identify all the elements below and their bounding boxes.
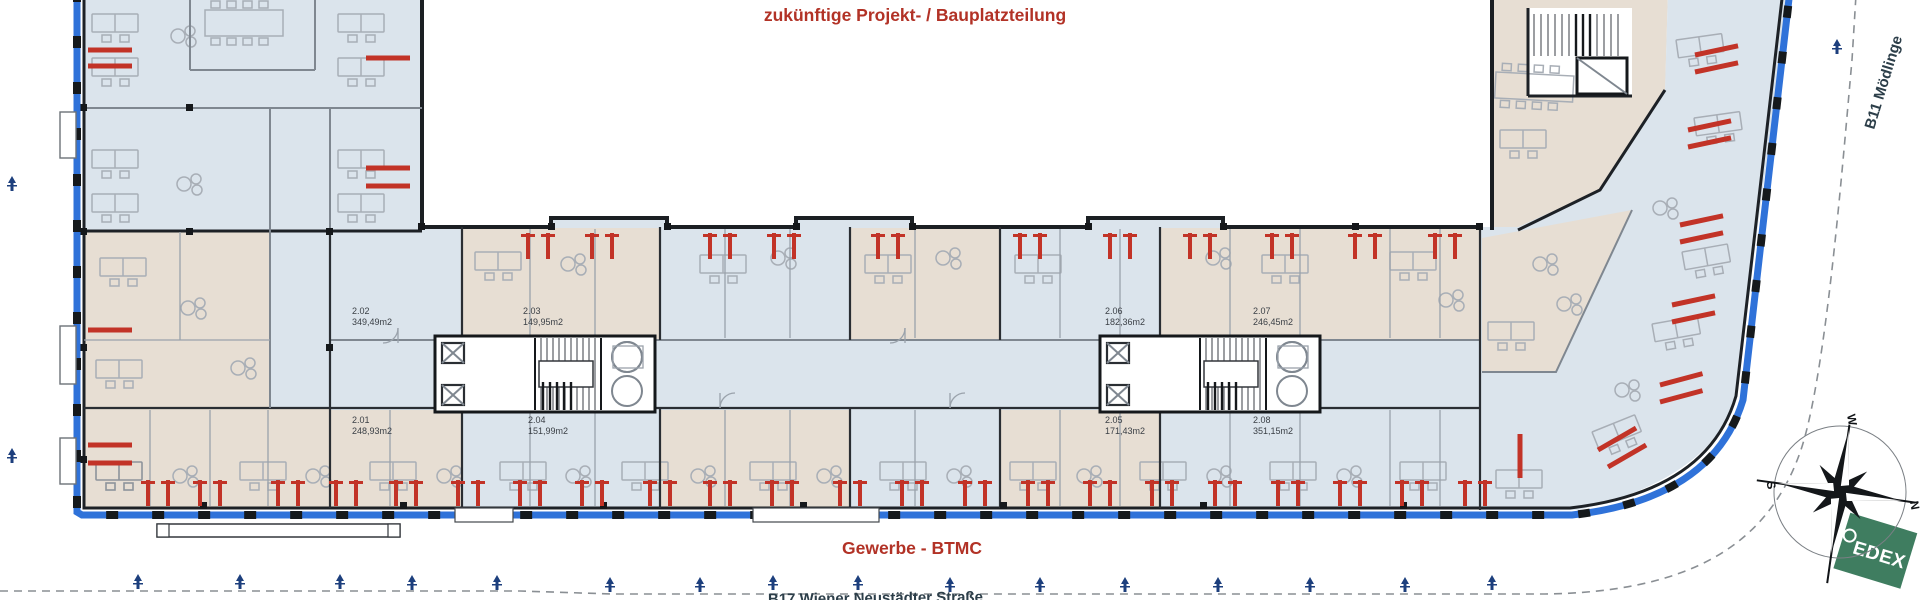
compass-south-label: S	[1764, 480, 1779, 490]
room-id: 2.06	[1105, 306, 1123, 316]
room-area: 171,43m2	[1105, 426, 1145, 436]
room-id: 2.07	[1253, 306, 1271, 316]
road-label-b17: B17 Wiener Neustädter Straße	[768, 589, 983, 600]
room-area: 182,36m2	[1105, 317, 1145, 327]
road-label-b11: B11 Mödlinge	[1862, 34, 1907, 131]
floor-plan-page: 2.02349,49m2 2.03149,95m2 2.06182,36m2 2…	[0, 0, 1920, 600]
core-right	[1100, 336, 1320, 412]
compass-north-label: N	[1907, 500, 1920, 511]
room-id: 2.08	[1253, 415, 1271, 425]
room-area: 149,95m2	[523, 317, 563, 327]
room-area: 246,45m2	[1253, 317, 1293, 327]
room-id: 2.02	[352, 306, 370, 316]
commercial-use-label: Gewerbe - BTMC	[842, 538, 982, 558]
room-area: 351,15m2	[1253, 426, 1293, 436]
room-area: 349,49m2	[352, 317, 392, 327]
floor-plan-canvas: 2.02349,49m2 2.03149,95m2 2.06182,36m2 2…	[0, 0, 1920, 600]
room-id: 2.04	[528, 415, 546, 425]
edex-logo: EDEX	[1833, 513, 1917, 589]
compass-west-label: W	[1844, 413, 1860, 427]
core-left	[435, 336, 655, 412]
future-division-label: zukünftige Projekt- / Bauplatzteilung	[764, 5, 1066, 25]
room-id: 2.01	[352, 415, 370, 425]
room-area: 151,99m2	[528, 426, 568, 436]
room-id: 2.05	[1105, 415, 1123, 425]
room-area: 248,93m2	[352, 426, 392, 436]
room-id: 2.03	[523, 306, 541, 316]
